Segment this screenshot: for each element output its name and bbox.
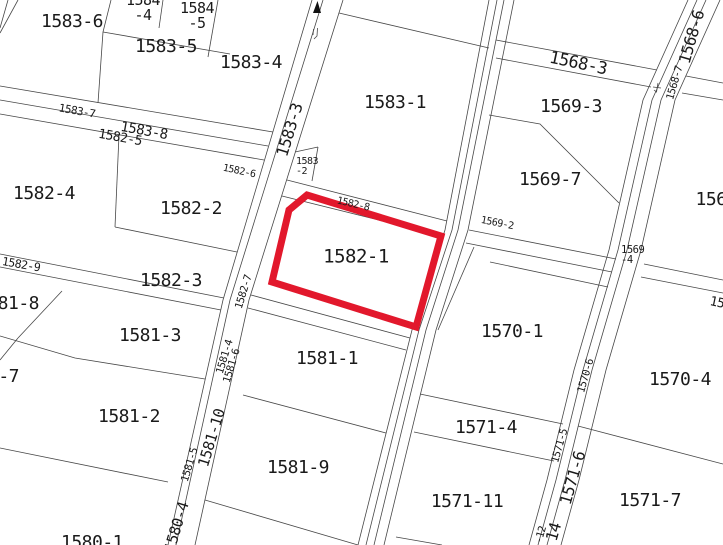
- parcel-boundary-line: [339, 13, 489, 48]
- map-label-1582-2: 1582-2: [160, 200, 222, 218]
- map-label-1583-4: 1583-4: [220, 54, 282, 72]
- parcel-boundary-line: [644, 264, 723, 280]
- map-label-1583-1: 1583-1: [364, 94, 426, 112]
- parcel-boundary-line: [469, 230, 616, 259]
- parcel-boundary-line: [115, 135, 119, 227]
- map-label-1570-1: 1570-1: [481, 323, 543, 341]
- parcel-boundary-line: [314, 28, 318, 39]
- parcel-boundary-line: [384, 0, 514, 545]
- parcel-boundary-line: [490, 262, 608, 287]
- parcel-boundary-line: [115, 227, 237, 252]
- map-label-15-partial: 15: [708, 295, 723, 311]
- parcel-boundary-line: [438, 247, 474, 330]
- map-label-1583-6: 1583-6: [41, 13, 103, 31]
- parcel-boundary-line: [396, 537, 442, 545]
- parcel-boundary-line: [0, 0, 8, 28]
- map-label-1581-9: 1581-9: [267, 459, 329, 477]
- map-label-1583-2: 1583 -2: [296, 157, 318, 177]
- map-label-1584-5: 1584 -5: [180, 1, 214, 31]
- map-label-1582-3: 1582-3: [140, 272, 202, 290]
- map-label-156-partial: 156: [695, 191, 723, 209]
- map-label-1571-4: 1571-4: [455, 419, 517, 437]
- parcel-boundary-line: [466, 243, 612, 272]
- parcel-boundary-line: [313, 29, 314, 35]
- map-label-1584-4: 1584 -4: [126, 0, 160, 23]
- parcel-boundary-line: [641, 277, 723, 293]
- map-label-1570-4: 1570-4: [649, 371, 711, 389]
- map-label-1582-1: 1582-1: [323, 248, 389, 267]
- road-symbol-arrow: [313, 1, 321, 13]
- map-label-1581-8: 1581-8: [0, 295, 39, 313]
- map-label-1581-7-partial: 1581-7: [0, 368, 19, 386]
- cadastral-map[interactable]: 1583-61584 -41584 -51583-51583-41583-115…: [0, 0, 723, 545]
- map-label-1581-1: 1581-1: [296, 350, 358, 368]
- map-label-1581-2: 1581-2: [98, 408, 160, 426]
- parcel-boundary-line: [358, 0, 489, 545]
- parcel-boundary-line: [0, 448, 168, 482]
- map-label-1571-11: 1571-11: [431, 493, 503, 511]
- parcel-boundary-line: [682, 93, 723, 100]
- map-label-1569-4: 1569 -4: [621, 245, 644, 265]
- map-label-1583-5: 1583-5: [135, 38, 197, 56]
- parcel-boundary-line: [243, 395, 386, 433]
- map-canvas: [0, 0, 723, 545]
- parcel-boundary-line: [529, 0, 688, 545]
- parcel-boundary-line: [374, 0, 504, 545]
- map-label-1569-3: 1569-3: [540, 98, 602, 116]
- map-label-1571-7: 1571-7: [619, 492, 681, 510]
- parcel-boundary-line: [0, 338, 18, 360]
- parcel-boundary-line: [686, 76, 723, 83]
- parcel-boundary-line: [578, 426, 723, 464]
- parcel-boundary-line: [0, 0, 18, 33]
- map-label-1582-4: 1582-4: [13, 185, 75, 203]
- map-label-1581-3: 1581-3: [119, 327, 181, 345]
- map-label-1569-7: 1569-7: [519, 171, 581, 189]
- parcel-boundary-line: [295, 147, 318, 152]
- parcel-boundary-line: [205, 500, 358, 545]
- map-label-1580-1: 1580-1: [61, 534, 123, 545]
